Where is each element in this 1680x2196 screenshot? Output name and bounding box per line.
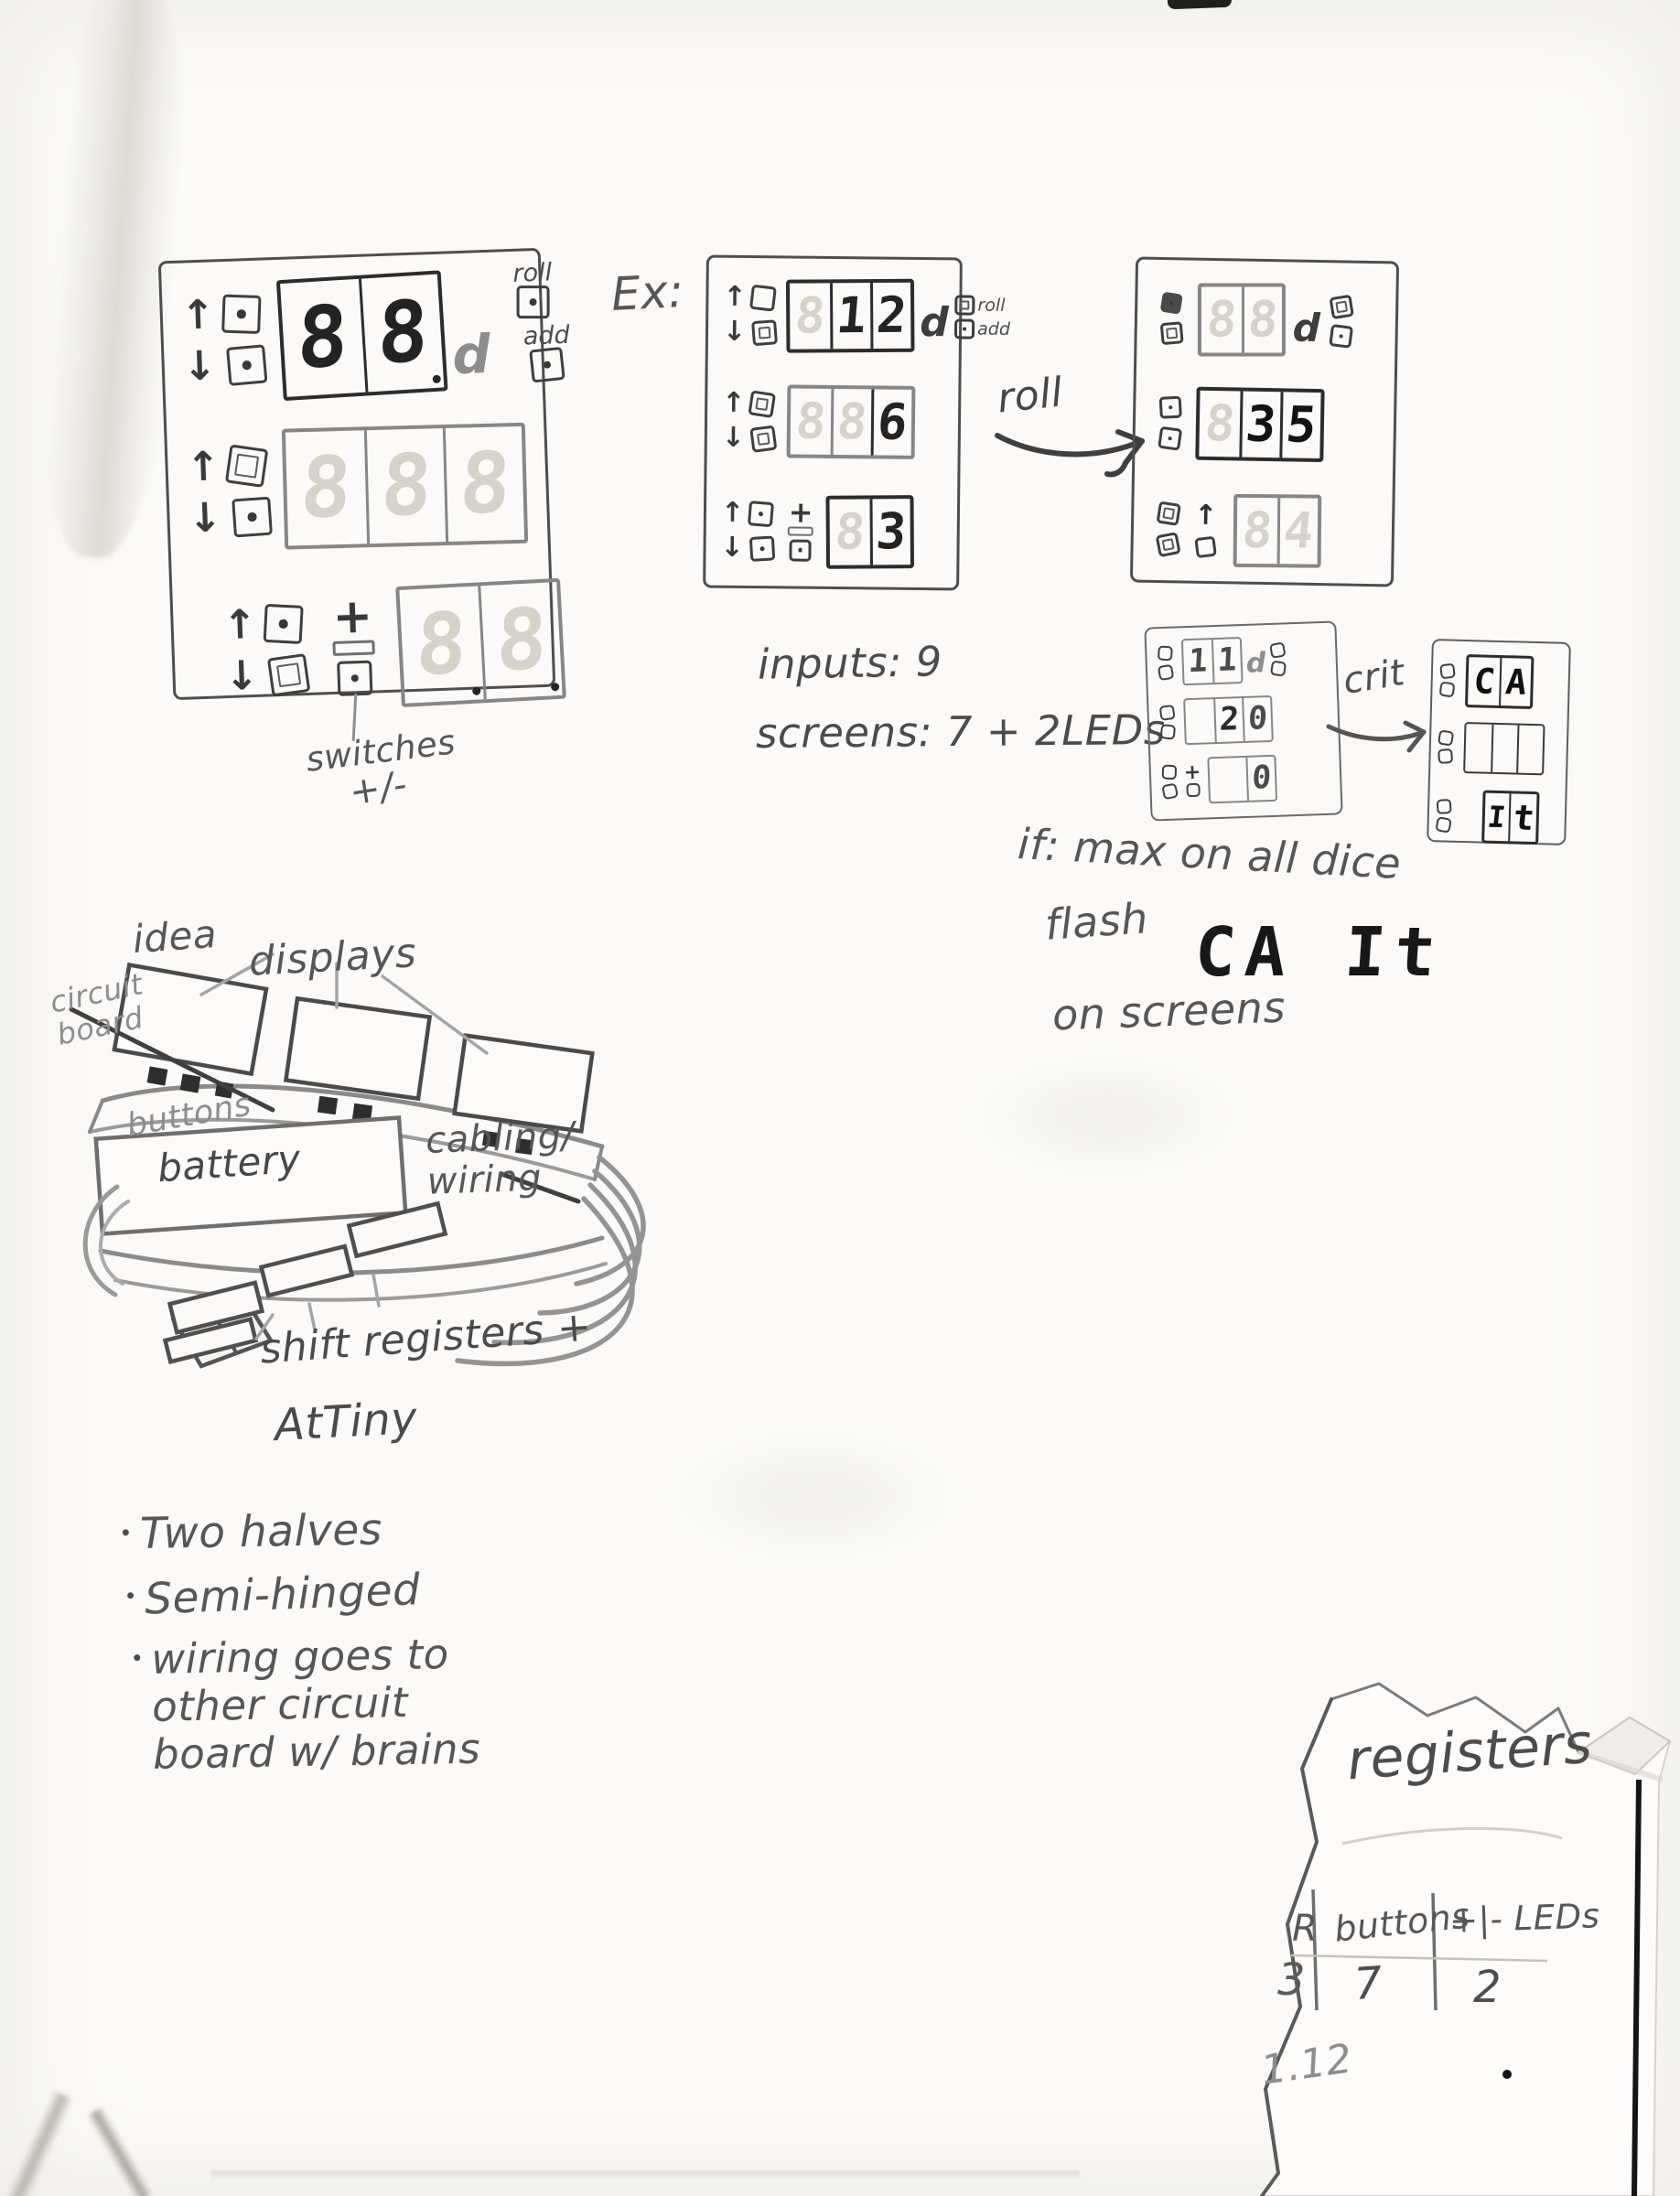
paper-crease-bottom-left2 [86,2106,154,2196]
seg-digit: 8 [1246,296,1280,345]
digit-cell [1210,758,1248,802]
erased-smudge2 [970,1052,1244,1180]
panel-row-modifier: I t [1436,789,1557,845]
increment-button [1439,663,1456,680]
panel-row-die-type: 1 1 d [1158,634,1331,687]
panel-row-die-type: C A [1439,653,1561,709]
up-down-switch-cluster: ↑ ↓ [180,293,266,387]
add-button [529,347,565,383]
plus-minus-switch: + [788,501,814,562]
seg-digit: 8 [296,294,350,382]
increment-button [1160,292,1183,315]
seg-digit: 3 [875,507,909,556]
seven-segment-display: 8 3 [826,495,915,569]
up-arrow-icon: ↑ [1194,502,1218,530]
up-down-switch-cluster: ↑ ↓ [720,500,775,563]
d-label: d [1245,650,1266,678]
sign-button [1186,783,1201,798]
panel-row-die-type: 8 8 d [1160,282,1390,359]
plus-icon: + [789,501,813,525]
seg-digit: 6 [876,398,910,447]
decimal-point [472,686,480,694]
example-panel-sketch: ↑ ↓ 8 1 2 d roll add ↑ ↓ 8 8 6 [703,255,963,591]
table-col3-header: +|- LEDs [1448,1897,1600,1940]
increment-button [1159,705,1176,721]
seven-segment-display: 8 3 5 [1195,387,1324,462]
increment-button [748,390,776,418]
seg-digit: 1 [835,291,868,340]
seven-segment-display: 8 4 [1233,494,1322,568]
seven-segment-display: 8 1 2 [786,279,915,353]
digit-cell: 6 [871,389,912,455]
seven-segment-display: 8 8 [1198,284,1286,357]
seg-digit: 0 [1252,762,1273,795]
down-arrow-icon: ↓ [188,498,222,539]
seven-segment-display: C A [1465,654,1534,709]
seg-digit: 5 [1284,400,1319,449]
decrement-button [226,344,268,386]
device-panel-sketch: ↑ ↓ 8 8 d roll add ↑ ↓ 8 8 8 [158,248,555,700]
note-text: wiring goes to other circuit board w/ br… [151,1631,481,1778]
increment-button [1158,645,1173,661]
digit-cell: 4 [1277,498,1319,564]
add-button-label: add [977,320,1010,338]
crit-before-panel-sketch: 1 1 d 2 0 [1144,620,1342,821]
panel-row-modifier: + 0 [1161,753,1335,806]
sign-switch: ↑ [1193,502,1217,557]
note-text: Semi-hinged [144,1566,421,1624]
down-arrow-icon: ↓ [723,318,746,346]
add-button [1329,324,1353,349]
rolled-panel-sketch: 8 8 d 8 3 5 [1130,257,1399,587]
up-arrow-icon: ↑ [180,295,215,336]
down-arrow-icon: ↓ [224,656,259,697]
decrement-button [1435,816,1452,834]
seven-segment-display [1463,722,1545,775]
digit-cell: I [1484,793,1509,842]
digit-cell: 8 [830,499,871,565]
crit-flash-display-text: CA It [1192,915,1448,991]
increment-button [221,295,261,334]
increment-button [1159,396,1182,419]
roll-add-cluster: roll add [954,295,1010,339]
digit-cell: 8 [791,389,832,455]
panel-row-result: 8 3 5 [1158,386,1388,463]
digit-cell: 8 [399,586,483,703]
decrement-button [1158,664,1174,681]
button-pair [1158,396,1181,449]
panel-row-die-type: ↑ ↓ 8 1 2 d roll add [723,278,954,354]
digit-cell: 1 [1212,639,1242,683]
panel-row-result: ↑ ↓ 8 8 8 [185,421,540,554]
button-pair [1160,293,1183,344]
down-arrow-icon: ↓ [182,346,217,387]
seven-segment-display: 1 1 [1181,637,1244,685]
digit-cell: C [1468,657,1500,705]
down-arrow-icon: ↓ [722,425,745,452]
seg-digit: 8 [298,446,354,532]
seg-digit: A [1503,664,1528,699]
digit-cell: 8 [1199,391,1240,457]
decrement-button [267,653,310,696]
scan-shadow-bottom [210,2170,1080,2181]
roll-button [1269,641,1287,659]
seg-digit: 8 [1204,296,1238,345]
seg-digit: 4 [1282,506,1317,555]
add-button [954,318,975,339]
seg-digit: 8 [1202,399,1237,448]
increment-button [748,501,774,527]
seg-digit: 8 [378,443,434,529]
seg-digit: 2 [875,291,909,340]
roll-button [954,295,975,315]
seg-digit: t [1511,800,1535,834]
digit-cell: 2 [870,283,911,349]
seg-digit: 8 [835,397,870,447]
example-label: Ex: [610,265,685,320]
seven-segment-display: 8 8 [395,578,566,707]
digit-cell: A [1499,658,1531,706]
panel-row-die-type: ↑ ↓ 8 8 d roll add [180,269,535,402]
seg-digit: 8 [793,291,827,340]
decrement-button [1156,532,1181,557]
decrement-button [1160,321,1184,345]
seg-digit: I [1486,802,1507,832]
note-text: Two halves [139,1506,382,1558]
seven-segment-display: 8 8 8 [282,423,528,550]
panel-row-modifier: ↑ 8 4 [1157,492,1386,569]
bullet-dot-icon [127,1592,134,1599]
bullet-dot-icon [123,1529,129,1535]
increment-button [1157,501,1181,525]
add-button [1270,660,1287,676]
seg-digit: 2 [1219,704,1240,737]
roll-button [1329,295,1353,319]
digit-cell: 8 [285,430,367,545]
decrement-button [749,535,776,562]
seven-segment-display: 8 8 [276,270,448,401]
flash-label: flash [1043,895,1149,949]
digit-cell: t [1508,793,1536,842]
down-arrow-icon: ↓ [720,534,743,562]
panel-row-result: ↑ ↓ 8 8 6 [722,384,953,460]
scanned-sketch-page: ↑ ↓ 8 8 d roll add ↑ ↓ 8 8 8 [0,0,1680,2196]
increment-button [749,284,777,311]
list-item: Two halves [122,1505,477,1559]
table-col3-value: 2 [1473,1964,1502,2013]
minus-bar [788,526,813,535]
digit-cell: 8 [364,428,446,544]
button-pair [1439,663,1455,696]
decrement-button [232,497,273,538]
device-concept-sketch [64,892,668,1478]
add-button-label: add [522,323,570,350]
battery-label: battery [156,1137,303,1190]
idea-label: idea [131,912,218,961]
up-arrow-icon: ↑ [722,390,745,417]
roll-add-cluster [1270,642,1286,676]
digit-cell [1185,699,1215,743]
button-pair [1159,705,1175,740]
button-pair [1158,646,1173,681]
digit-cell: 8 [280,279,365,397]
button-pair [1438,730,1453,763]
seg-digit: 8 [457,441,512,527]
seg-digit: 8 [376,289,429,377]
sign-button [1194,536,1217,559]
minus-bar [332,640,375,656]
digit-cell: 5 [1279,392,1320,458]
plus-icon: + [332,598,373,638]
decrement-button [1439,682,1456,698]
decimal-point [432,375,441,384]
up-down-switch-cluster: ↑ ↓ [186,445,272,539]
cabling-wiring-label: cabling/ wiring [425,1115,576,1202]
seven-segment-display: 2 0 [1183,695,1274,745]
digit-cell: 8 [1242,287,1282,353]
d-label: d [1292,309,1320,349]
digit-cell: 0 [1246,757,1276,801]
digit-cell: 8 [1237,498,1278,564]
if-max-rule-line1: if: max on all dice [1017,821,1402,888]
increment-button [1438,729,1454,746]
plus-minus-switch: + [1184,765,1202,797]
seven-segment-display: 0 [1208,755,1278,804]
list-item: wiring goes to other circuit board w/ br… [134,1631,481,1779]
increment-button [1161,764,1177,780]
up-down-switch-cluster: ↑ ↓ [723,284,778,347]
sign-button [790,539,812,561]
switches-plusminus-caption: +/- [347,764,410,813]
sign-button [337,660,372,695]
increment-button [1437,799,1452,814]
panel-row-result [1438,721,1559,775]
digit-cell: 2 [1213,698,1244,742]
d-label: d [451,328,491,382]
digit-cell: 1 [830,283,871,349]
seg-digit: C [1471,663,1496,698]
d-label: d [920,303,949,343]
up-down-switch-cluster: ↑ ↓ [722,390,777,453]
plus-icon: + [1184,765,1201,781]
displays-label: displays [248,931,417,985]
seven-segment-display: 8 8 6 [787,384,916,458]
decrement-button [1438,748,1453,764]
seg-digit: 3 [1244,400,1278,449]
crit-transition-label: crit [1341,652,1407,703]
button-pair [1436,799,1451,832]
table-col1-header: R [1292,1909,1318,1950]
screens-note: screens: 7 + 2LEDs [756,707,1166,757]
pencil-dot [1502,2070,1512,2079]
up-arrow-icon: ↑ [723,284,746,311]
decrement-button [751,319,778,346]
attiny-label: AtTiny [274,1394,419,1451]
button-pair [1162,765,1178,800]
decrement-button [1160,724,1177,740]
seg-digit: 8 [1240,506,1275,555]
on-screens-label: on screens [1051,985,1286,1039]
increment-button [225,444,268,487]
paper-crease-bottom-left [5,2090,75,2196]
digit-cell [1516,726,1543,774]
crit-after-panel-sketch: C A I t [1427,639,1571,845]
panel-row-modifier: ↑ ↓ + 8 8 [190,580,545,713]
digit-cell: 8 [359,274,444,393]
table-col1-value: 3 [1277,1956,1306,2006]
decrement-button [1161,782,1179,800]
plus-minus-switch: + [331,598,377,696]
roll-button-label: roll [512,260,553,285]
seg-digit: 1 [1188,645,1209,678]
roll-add-cluster: roll add [497,260,571,383]
digit-cell: 0 [1242,697,1272,741]
digit-cell: 3 [870,499,911,565]
increment-button [263,604,303,644]
up-arrow-icon: ↑ [186,447,221,488]
button-pair [1157,502,1179,555]
digit-cell: 8 [478,582,562,699]
roll-button-label: roll [977,296,1005,314]
design-notes-list: Two halves Semi-hinged wiring goes to ot… [122,1505,480,1779]
digit-cell [1465,724,1492,772]
digit-cell: 8 [790,283,831,349]
up-arrow-icon: ↑ [222,605,257,646]
inputs-note: inputs: 9 [758,639,943,688]
crit-arrow-icon [1323,706,1442,761]
digit-cell: 1 [1183,640,1213,684]
panel-row-modifier: ↑ ↓ + 8 3 [720,494,952,570]
seg-digit: 8 [415,601,468,688]
seg-digit: 0 [1247,703,1268,736]
seg-digit: 8 [833,507,867,556]
seg-digit: 8 [495,597,549,684]
seg-digit: 1 [1217,644,1238,677]
decrement-button [1158,426,1182,451]
erased-smudge [668,1427,961,1565]
table-col2-value: 7 [1352,1959,1384,2010]
digit-cell: 3 [1239,392,1280,458]
roll-button [517,285,550,318]
seg-digit: 8 [793,397,828,447]
list-item: Semi-hinged [127,1567,479,1621]
bullet-dot-icon [134,1654,140,1661]
up-arrow-icon: ↑ [721,500,744,527]
digit-cell: 8 [443,426,524,542]
digit-cell: 8 [1201,287,1242,353]
ink-smudge-top [1168,0,1232,9]
seven-segment-display: I t [1481,791,1539,845]
digit-cell [1491,725,1517,773]
roll-add-cluster [1330,296,1352,347]
decrement-button [749,425,777,452]
digit-cell: 8 [831,389,872,455]
panel-row-result: 2 0 [1159,694,1333,747]
decimal-point [551,683,559,691]
up-down-switch-cluster: ↑ ↓ [222,603,308,697]
